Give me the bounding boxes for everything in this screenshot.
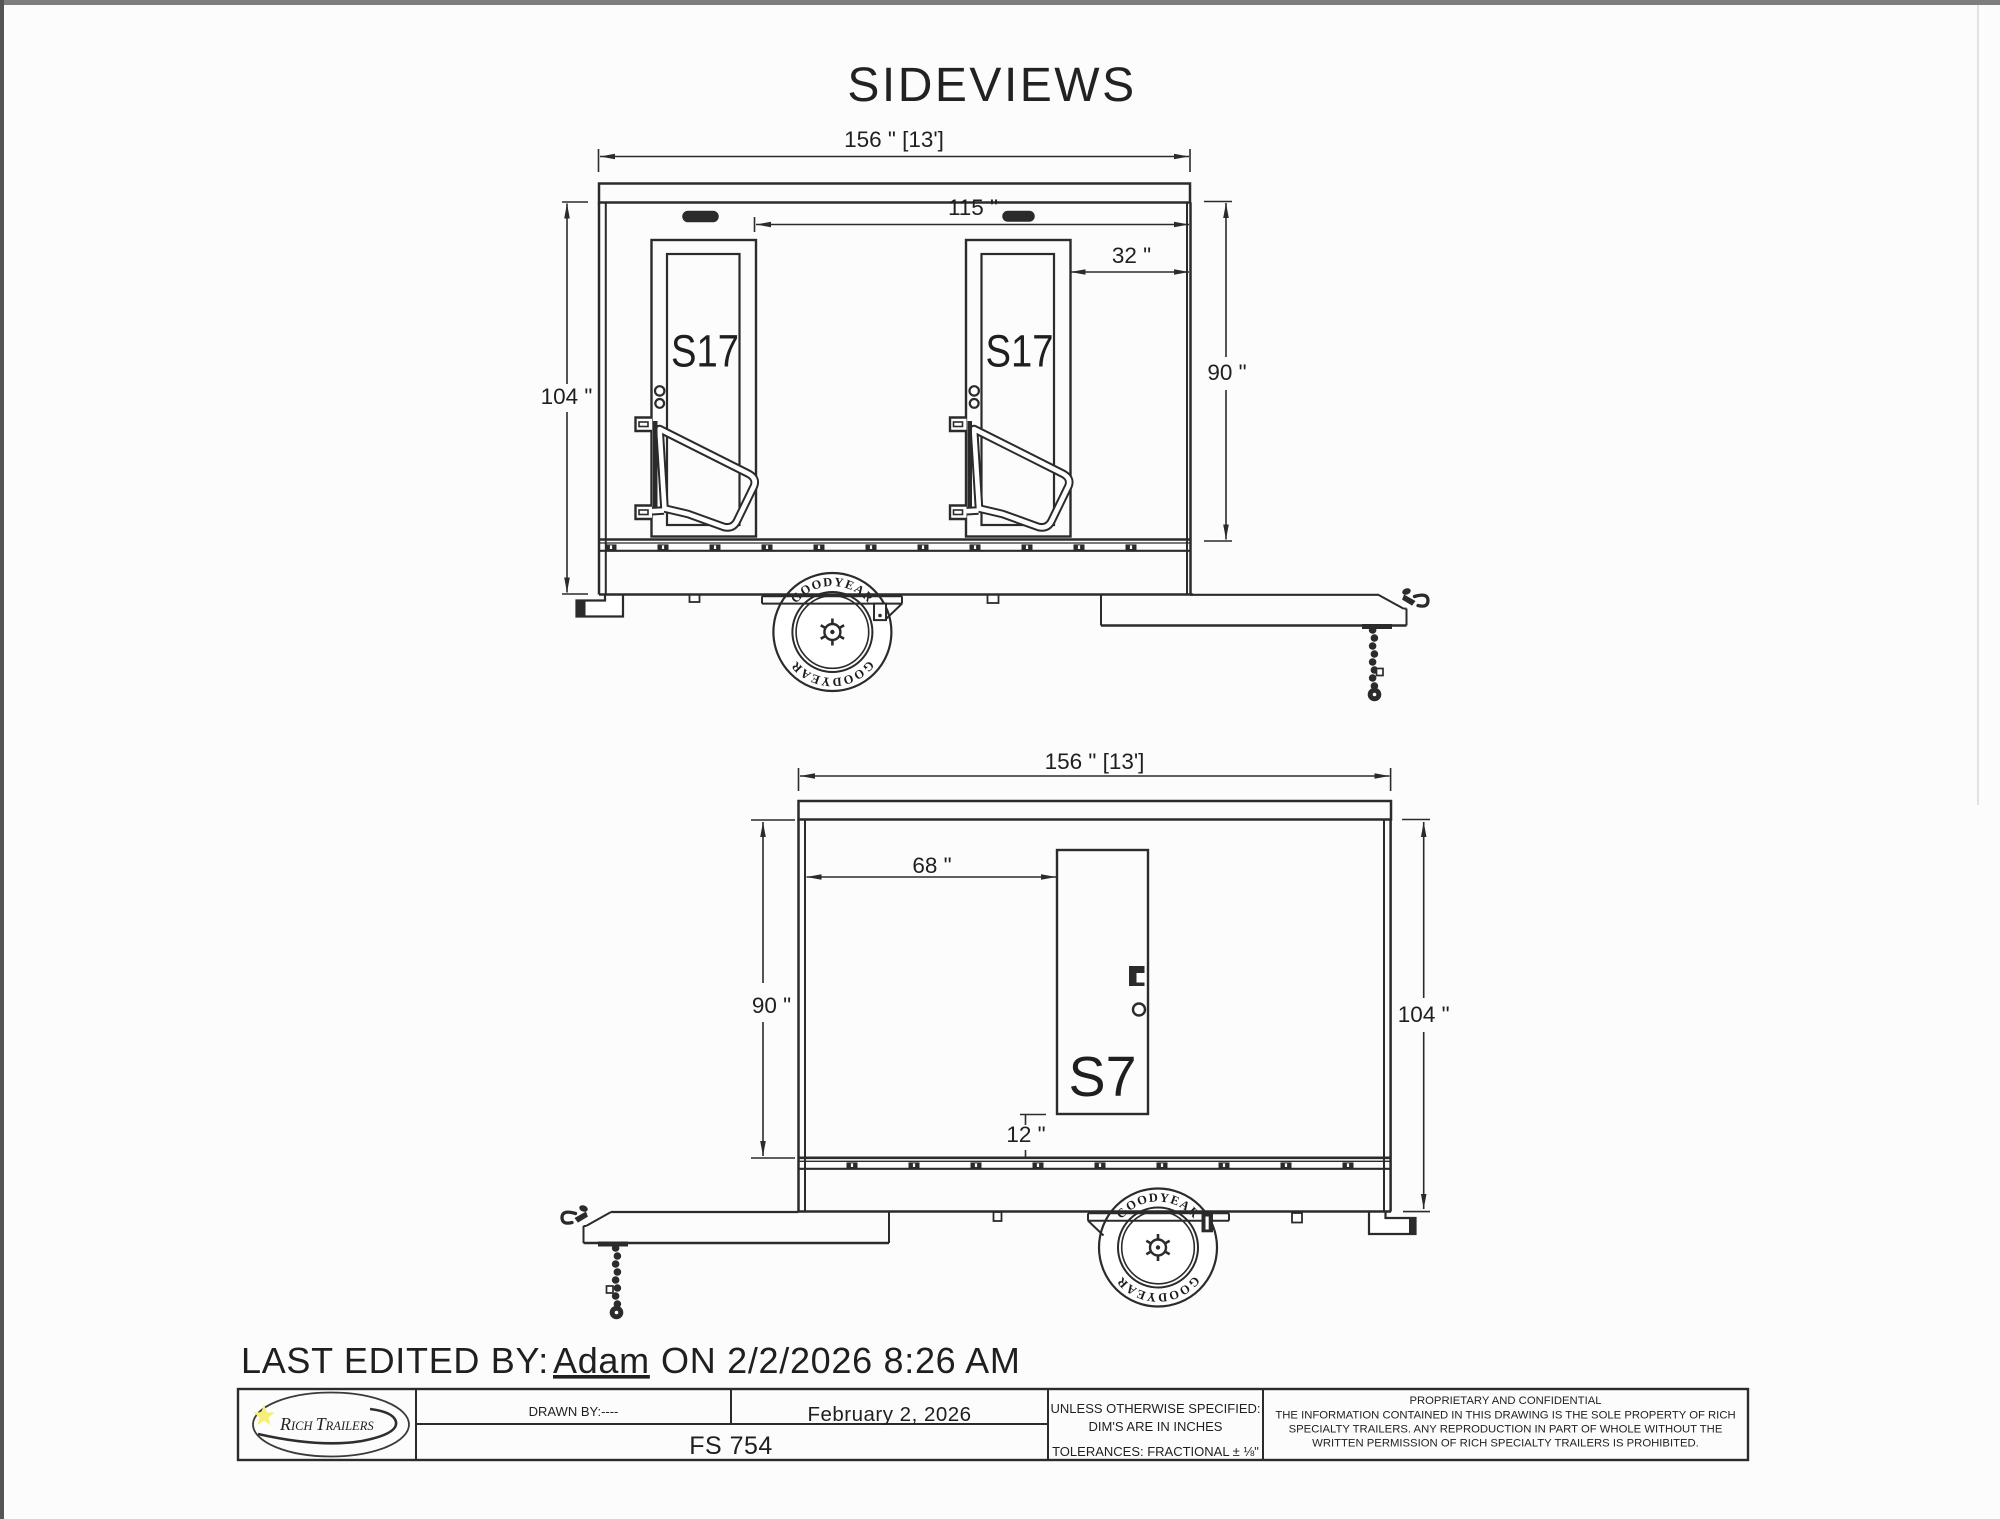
svg-text:PROPRIETARY AND CONFIDENTIAL: PROPRIETARY AND CONFIDENTIAL [1409,1395,1601,1407]
svg-text:115 ": 115 " [948,195,998,220]
svg-text:TOLERANCES: FRACTIONAL ± ⅛": TOLERANCES: FRACTIONAL ± ⅛" [1052,1444,1259,1459]
svg-text:February 2, 2026: February 2, 2026 [807,1403,971,1426]
svg-text:104 ": 104 " [541,384,593,409]
svg-text:S17: S17 [671,326,739,377]
svg-text:S17: S17 [986,326,1054,377]
svg-text:THE INFORMATION CONTAINED IN T: THE INFORMATION CONTAINED IN THIS DRAWIN… [1275,1410,1735,1422]
svg-text:S7: S7 [1069,1045,1137,1109]
svg-text:SPECIALTY TRAILERS. ANY REPROD: SPECIALTY TRAILERS. ANY REPRODUCTION IN … [1289,1424,1723,1436]
svg-text:ON 2/2/2026 8:26 AM: ON 2/2/2026 8:26 AM [661,1340,1021,1381]
svg-text:68 ": 68 " [912,853,951,878]
svg-text:DRAWN BY:----: DRAWN BY:---- [529,1404,619,1419]
svg-text:UNLESS OTHERWISE SPECIFIED:: UNLESS OTHERWISE SPECIFIED: [1051,1401,1261,1416]
svg-text:90 ": 90 " [752,993,791,1018]
svg-text:SIDEVIEWS: SIDEVIEWS [847,59,1136,112]
svg-text:104 ": 104 " [1398,1002,1450,1027]
svg-text:156 " [13']: 156 " [13'] [844,127,944,152]
svg-text:LAST EDITED BY:: LAST EDITED BY: [241,1340,549,1381]
svg-text:32 ": 32 " [1112,243,1151,268]
svg-text:156 " [13']: 156 " [13'] [1045,749,1145,774]
svg-text:Adam: Adam [553,1340,650,1381]
svg-text:WRITTEN PERMISSION OF RICH SPE: WRITTEN PERMISSION OF RICH SPECIALTY TRA… [1312,1438,1699,1450]
svg-text:90 ": 90 " [1207,360,1246,385]
svg-text:12 ": 12 " [1006,1122,1045,1147]
svg-text:DIM'S ARE IN INCHES: DIM'S ARE IN INCHES [1089,1419,1223,1434]
svg-text:FS 754: FS 754 [689,1432,773,1460]
